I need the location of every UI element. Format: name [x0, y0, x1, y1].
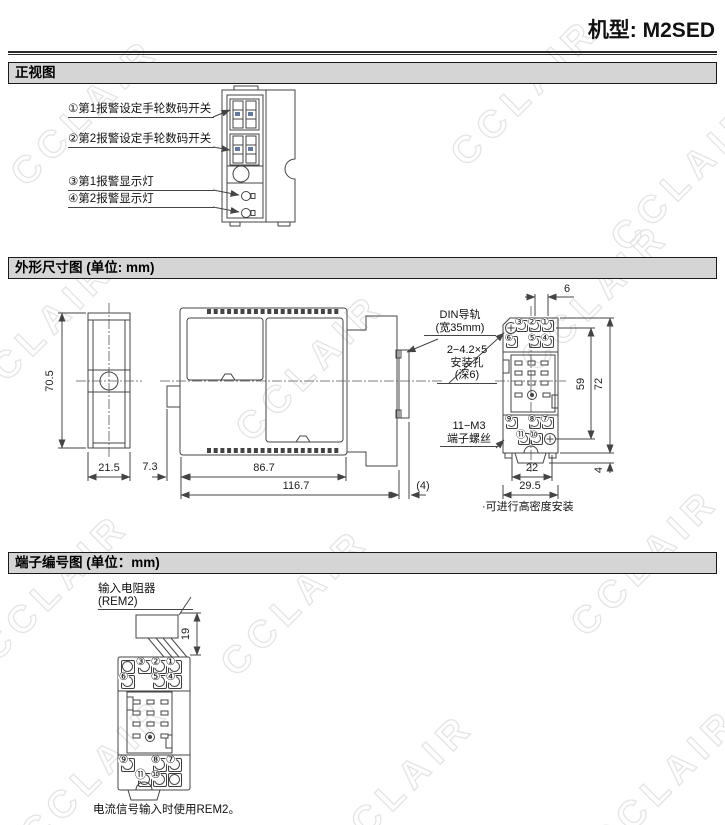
- dim-side-view-drawing: [152, 308, 426, 499]
- label-din-rail-line1: DIN导轨: [424, 309, 496, 322]
- socket-terminal-7: ⑦: [168, 758, 182, 772]
- model-title: 机型: M2SED: [588, 14, 715, 44]
- dim-rear-height: 72: [593, 378, 605, 390]
- section-header-terminals: 端子编号图 (单位：mm): [8, 552, 717, 574]
- dim-front-height: 70.5: [44, 370, 56, 391]
- terminal-number: ②: [150, 657, 161, 668]
- terminal-number: ③: [135, 657, 146, 668]
- note-high-density: ·可进行高密度安装: [482, 498, 574, 514]
- socket-terminal-10: ⑩: [153, 773, 167, 787]
- label-terminal-screws-line2: 端子螺丝: [440, 433, 498, 446]
- label-mounting-hole-line2: 安装孔: [437, 357, 497, 370]
- label-input-resistor: 输入电阻器(REM2): [98, 583, 193, 610]
- terminal-number: ④: [540, 334, 550, 344]
- rear-terminal-10: ⑩: [531, 433, 543, 445]
- label-din-rail-line2: (宽35mm): [424, 322, 496, 335]
- terminal-number: ⑨: [504, 415, 514, 425]
- terminal-number: ⑩: [150, 770, 161, 781]
- terminal-number: ①: [540, 318, 550, 328]
- dim-rear-width: 29.5: [519, 480, 540, 492]
- front-view-drawing: [213, 86, 295, 226]
- dim-side-offset: 7.3: [142, 461, 157, 473]
- datasheet-page: CCLAIR CCLAIR CCLAIR CCLAIR CCLAIR CCLAI…: [0, 0, 725, 825]
- socket-terminal-4: ④: [168, 675, 182, 689]
- terminal-number: ⑧: [150, 755, 161, 766]
- callout-alarm1-lamp: ③第1报警显示灯: [68, 175, 214, 191]
- rear-terminal-7: ⑦: [542, 417, 554, 429]
- terminal-number: ⑤: [527, 334, 537, 344]
- terminal-number: ⑨: [118, 755, 129, 766]
- label-din-rail: DIN导轨 (宽35mm): [424, 309, 496, 336]
- terminal-number: ⑤: [150, 672, 161, 683]
- section-header-front-view: 正视图: [8, 62, 717, 84]
- drawing-linework: 70.5 21.5 7.3 86.7 116.7 (4) 6 59 72 4 2…: [0, 0, 725, 825]
- terminal-number: ⑩: [529, 431, 539, 441]
- terminal-number: ⑥: [504, 334, 514, 344]
- rear-terminal-1: ①: [542, 320, 554, 332]
- dim-side-body: 86.7: [253, 462, 274, 474]
- callout-alarm2-lamp: ④第2报警显示灯: [68, 192, 214, 208]
- rear-terminal-4: ④: [542, 336, 554, 348]
- rear-terminal-6: ⑥: [506, 336, 518, 348]
- rear-terminal-9: ⑨: [506, 417, 518, 429]
- label-mounting-hole: 2−4.2×5 安装孔 (深6): [437, 344, 497, 384]
- terminal-number: ②: [527, 318, 537, 328]
- dim-front-view-drawing: [58, 313, 130, 481]
- section-header-dimensions: 外形尺寸图 (单位: mm): [8, 257, 717, 279]
- label-mounting-hole-line3: (深6): [437, 369, 497, 382]
- label-mounting-hole-line1: 2−4.2×5: [437, 344, 497, 357]
- dim-rear-tab: 4: [593, 467, 605, 473]
- socket-terminal-9: ⑨: [121, 758, 135, 772]
- dim-side-overall: 116.7: [283, 480, 310, 492]
- title-divider: [8, 51, 717, 55]
- label-terminal-screws: 11−M3 端子螺丝: [440, 420, 498, 447]
- terminal-number: ④: [165, 672, 176, 683]
- dim-rear-span: 59: [575, 378, 587, 390]
- terminal-number: ⑧: [527, 415, 537, 425]
- callout-alarm2-switch: ②第2报警设定手轮数码开关: [68, 132, 214, 148]
- dim-rail-gap: (4): [416, 480, 429, 492]
- socket-terminal-6: ⑥: [121, 675, 135, 689]
- dim-front-width: 21.5: [98, 462, 119, 474]
- rear-socket-slots: [515, 361, 550, 397]
- terminal-number: ⑥: [118, 672, 129, 683]
- dim-rear-inner-width: 22: [526, 462, 538, 474]
- terminal-number: ①: [165, 657, 176, 668]
- dim-resistor-height: 19: [180, 628, 192, 640]
- terminal-number: ⑦: [165, 755, 176, 766]
- dim-rear-pitch: 6: [564, 283, 570, 295]
- terminal-number: ③: [514, 318, 524, 328]
- terminal-number: ⑪: [135, 770, 146, 781]
- terminal-number: ⑦: [540, 415, 550, 425]
- terminal-number: ⑪: [516, 431, 526, 441]
- callout-alarm1-switch: ①第1报警设定手轮数码开关: [68, 102, 214, 118]
- note-current-signal: 电流信号输入时使用REM2。: [93, 801, 240, 817]
- socket-screw-hole: [168, 773, 182, 787]
- label-terminal-screws-line1: 11−M3: [440, 420, 498, 433]
